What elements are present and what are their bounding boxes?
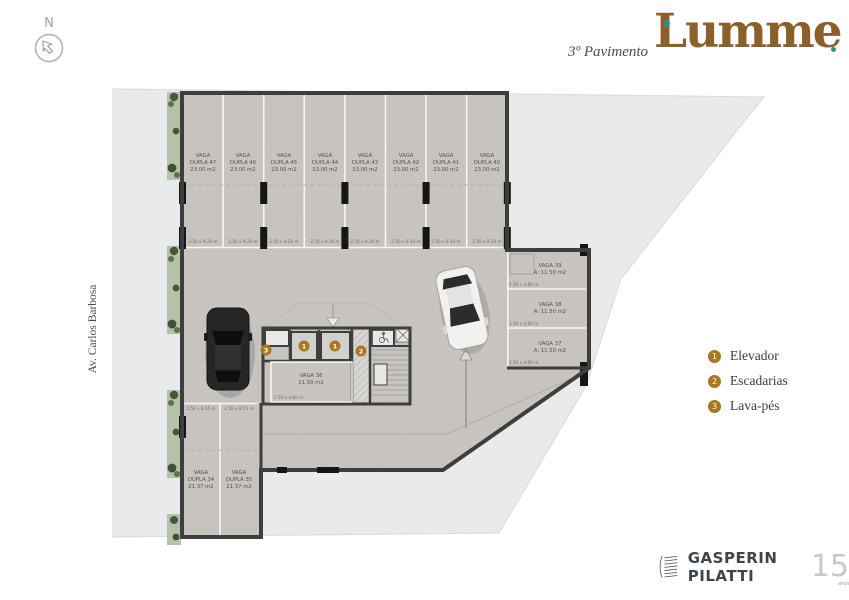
building-icon — [658, 549, 681, 585]
compass-arrow-icon — [43, 41, 53, 53]
svg-text:VAGA: VAGA — [439, 153, 454, 159]
svg-text:VAGA: VAGA — [236, 153, 251, 159]
svg-text:DUPLA 43: DUPLA 43 — [352, 160, 378, 166]
developer-logo: GASPERIN PILATTI 15 anos — [658, 549, 849, 585]
svg-text:2.50 x 9.20 m: 2.50 x 9.20 m — [228, 239, 257, 244]
svg-text:VAGA: VAGA — [480, 153, 495, 159]
svg-text:VAGA: VAGA — [358, 153, 373, 159]
legend-marker-3: 3 — [708, 400, 721, 413]
svg-text:2.50 x 9.20 m: 2.50 x 9.20 m — [431, 239, 460, 244]
svg-text:DUPLA 40: DUPLA 40 — [474, 160, 501, 166]
svg-text:3: 3 — [264, 346, 269, 354]
legend-item-elevator: 1 Elevador — [708, 348, 788, 364]
svg-text:DUPLA 47: DUPLA 47 — [190, 160, 216, 166]
svg-text:2.50 x 8.55 m: 2.50 x 8.55 m — [186, 406, 215, 411]
north-compass-icon: N — [26, 12, 72, 74]
svg-text:DUPLA 46: DUPLA 46 — [230, 160, 257, 166]
svg-text:2.50 x 9.20 m: 2.50 x 9.20 m — [391, 239, 420, 244]
svg-text:2.50 x 9.20 m: 2.50 x 9.20 m — [269, 239, 298, 244]
svg-text:1: 1 — [333, 342, 338, 350]
svg-text:DUPLA 45: DUPLA 45 — [271, 160, 297, 166]
svg-text:23.00 m2: 23.00 m2 — [393, 167, 418, 173]
svg-text:2.50 x 9.20 m: 2.50 x 9.20 m — [472, 239, 501, 244]
svg-text:21.37 m2: 21.37 m2 — [188, 484, 213, 490]
street-label: Av. Carlos Barbosa — [87, 259, 103, 399]
svg-text:2: 2 — [359, 347, 364, 355]
svg-text:A: 11.50 m2: A: 11.50 m2 — [534, 309, 566, 315]
svg-text:VAGA: VAGA — [232, 470, 247, 476]
svg-text:2.50 x 8.55 m: 2.50 x 8.55 m — [224, 406, 253, 411]
brand-teal-accent-icon — [664, 20, 670, 27]
legend-item-footwash: 3 Lava-pés — [708, 398, 788, 414]
svg-text:23.00 m2: 23.00 m2 — [433, 167, 458, 173]
svg-text:DUPLA 44: DUPLA 44 — [312, 160, 339, 166]
legend: 1 Elevador 2 Escadarias 3 Lava-pés — [708, 348, 788, 423]
svg-text:11.50 m2: 11.50 m2 — [298, 380, 323, 386]
svg-text:DUPLA 41: DUPLA 41 — [433, 160, 459, 166]
svg-text:23.00 m2: 23.00 m2 — [230, 167, 255, 173]
svg-text:23.00 m2: 23.00 m2 — [352, 167, 377, 173]
footwash-room — [265, 330, 289, 346]
svg-text:VAGA 37: VAGA 37 — [539, 341, 562, 347]
legend-label: Elevador — [730, 348, 779, 364]
legend-label: Lava-pés — [730, 398, 779, 414]
floorplan-drawing: VAGA DUPLA 47 23.00 m2 2.50 x 9.20 m VAG… — [0, 0, 849, 600]
shaft-x-box — [396, 328, 410, 342]
svg-text:DUPLA 35: DUPLA 35 — [226, 477, 252, 483]
anniversary-suffix: anos — [838, 568, 849, 600]
svg-text:2.50 x 4.60 m: 2.50 x 4.60 m — [509, 321, 538, 326]
legend-marker-1: 1 — [708, 350, 721, 363]
anniversary-badge: 15 anos — [811, 551, 849, 583]
brand-logo: Lumme — [654, 4, 841, 59]
svg-text:VAGA: VAGA — [196, 153, 211, 159]
landscaping-strips — [167, 92, 181, 545]
svg-text:2.50 x 4.60 m: 2.50 x 4.60 m — [509, 360, 538, 365]
svg-text:VAGA 39: VAGA 39 — [539, 263, 562, 269]
svg-text:VAGA: VAGA — [194, 470, 209, 476]
svg-text:VAGA: VAGA — [318, 153, 333, 159]
car-black — [204, 308, 255, 398]
svg-text:VAGA 36: VAGA 36 — [300, 373, 324, 379]
svg-text:A: 11.50 m2: A: 11.50 m2 — [534, 348, 566, 354]
svg-text:1: 1 — [302, 342, 307, 350]
svg-text:DUPLA 42: DUPLA 42 — [393, 160, 419, 166]
svg-text:23.00 m2: 23.00 m2 — [474, 167, 499, 173]
svg-text:23.00 m2: 23.00 m2 — [312, 167, 337, 173]
svg-text:A: 11.50 m2: A: 11.50 m2 — [534, 270, 566, 276]
stair-corridor — [352, 330, 370, 402]
svg-text:23.00 m2: 23.00 m2 — [190, 167, 215, 173]
svg-text:2.50 x 9.20 m: 2.50 x 9.20 m — [188, 239, 217, 244]
compass-letter: N — [44, 16, 54, 31]
brand-teal-accent-icon — [831, 47, 836, 52]
svg-text:VAGA: VAGA — [399, 153, 414, 159]
svg-text:2.50 x 9.20 m: 2.50 x 9.20 m — [310, 239, 339, 244]
svg-text:2.50 x 9.20 m: 2.50 x 9.20 m — [350, 239, 379, 244]
svg-text:21.37 m2: 21.37 m2 — [226, 484, 251, 490]
floor-title: 3º Pavimento — [538, 44, 648, 61]
svg-text:VAGA: VAGA — [277, 153, 292, 159]
svg-text:23.00 m2: 23.00 m2 — [271, 167, 296, 173]
svg-text:VAGA 38: VAGA 38 — [539, 302, 563, 308]
svg-text:2.50 x 4.60 m: 2.50 x 4.60 m — [509, 282, 538, 287]
legend-item-stairs: 2 Escadarias — [708, 373, 788, 389]
floorplan-page: VAGA DUPLA 47 23.00 m2 2.50 x 9.20 m VAG… — [0, 0, 849, 600]
svg-text:2.50 x 4.60 m: 2.50 x 4.60 m — [274, 395, 303, 400]
legend-label: Escadarias — [730, 373, 788, 389]
developer-name: GASPERIN PILATTI — [688, 549, 803, 585]
legend-marker-2: 2 — [708, 375, 721, 388]
svg-text:DUPLA 34: DUPLA 34 — [188, 477, 215, 483]
